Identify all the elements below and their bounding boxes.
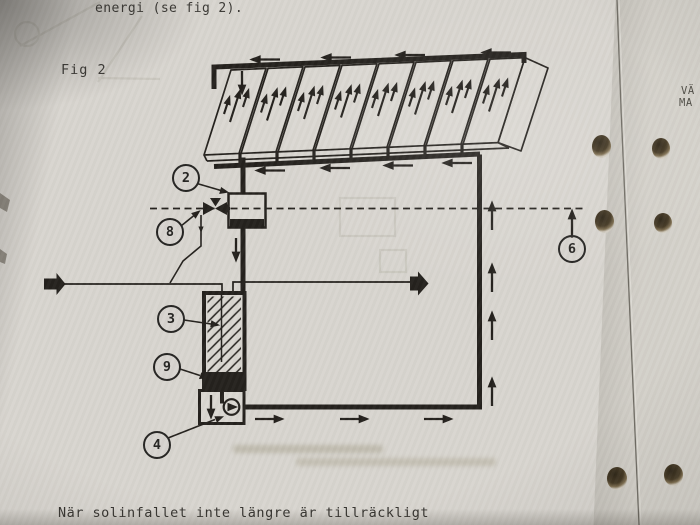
punch-hole [595,210,614,233]
tank-hatching [208,297,242,373]
solar-collector-panels [204,58,548,161]
callout-circle-8: 8 [156,218,184,246]
safety-valve-icon [203,198,230,215]
callout-circle-9: 9 [153,353,181,381]
body-text-top: energi (se fig 2). [95,1,243,16]
punch-hole [607,467,627,490]
body-text-bottom: När solinfallet inte längre är tillräckl… [58,505,429,521]
downcomer-arrow [233,238,238,260]
heat-exchanger-unit [225,194,266,228]
return-flow-arrows [255,416,451,421]
punch-hole [592,135,611,158]
tank-black-band [203,372,246,391]
callout-circle-6: 6 [558,235,586,263]
storage-tank [203,293,246,391]
margin-text-line1: VÄ [681,85,695,97]
riser-and-return-pipe [231,155,480,408]
punch-hole [652,138,670,159]
photographed-document-page: energi (se fig 2). Fig 2 När solinfallet… [0,0,700,525]
riser-flow-arrows [489,204,494,407]
callout-circle-3: 3 [157,305,185,333]
show-through-smudge [233,445,383,453]
page-edge-line [617,0,641,525]
show-through-smudge [296,458,496,466]
punch-hole [654,213,672,233]
punch-hole [664,464,683,486]
callout-circle-2: 2 [172,164,200,192]
outlet-arrow-icon [410,272,429,296]
margin-text-line2: MA [679,97,693,109]
callout-circle-4: 4 [143,431,171,459]
inlet-arrow-icon [44,273,66,295]
pump-unit [200,390,245,424]
edge-marks [0,193,10,264]
figure-label: Fig 2 [61,62,107,78]
